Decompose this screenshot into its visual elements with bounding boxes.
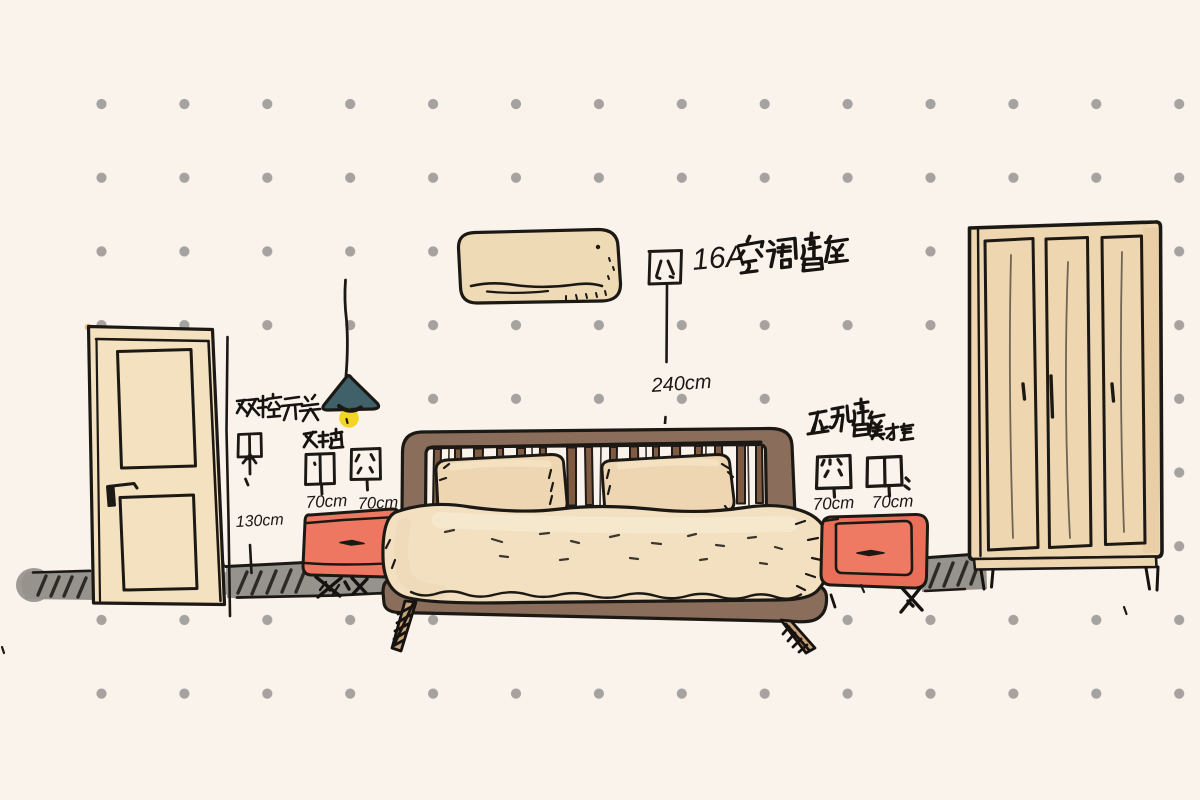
- svg-text:70cm: 70cm: [812, 493, 855, 514]
- svg-text:70cm: 70cm: [871, 492, 913, 512]
- svg-text:240cm: 240cm: [650, 371, 712, 397]
- svg-text:130cm: 130cm: [235, 512, 284, 531]
- svg-text:70cm: 70cm: [305, 491, 348, 512]
